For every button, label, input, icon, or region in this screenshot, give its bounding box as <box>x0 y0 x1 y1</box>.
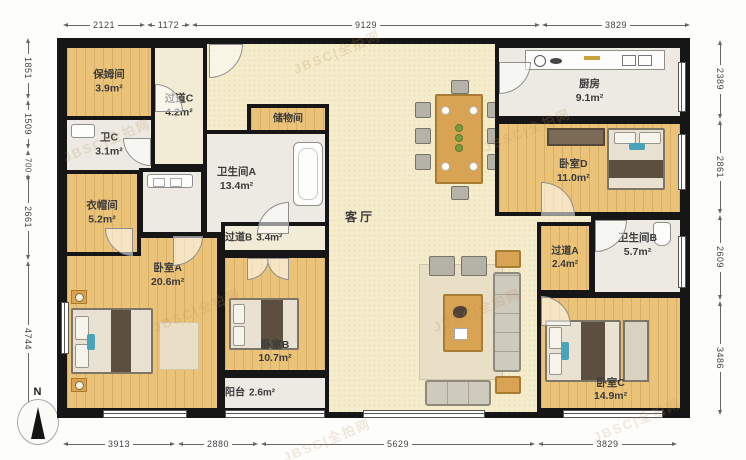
dining-chair <box>415 128 431 144</box>
coffee-table <box>443 294 483 352</box>
dim-bottom-1: 3913 <box>63 439 175 449</box>
room-balcony: 阳台2.6m² <box>221 374 329 412</box>
dining-chair <box>415 154 431 170</box>
window-bedroom-a-bottom <box>103 410 187 418</box>
window-bedroom-c-bottom <box>563 410 663 418</box>
dim-bottom-2: 2880 <box>178 439 258 449</box>
side-table <box>495 250 521 268</box>
compass: N <box>14 386 62 445</box>
compass-north-label: N <box>14 386 62 398</box>
sofa-l <box>493 272 521 372</box>
bathtub <box>293 142 323 206</box>
window-bedroom-a-left <box>61 302 69 354</box>
dim-right-3: 2609 <box>714 215 726 300</box>
bed-c <box>545 320 621 382</box>
dresser <box>547 128 605 146</box>
room-storage: 储物间 <box>247 104 329 134</box>
sink-counter <box>147 174 193 188</box>
wardrobe <box>623 320 649 382</box>
dining-table <box>435 94 483 184</box>
compass-needle-icon <box>31 407 45 439</box>
window-kitchen-right <box>678 62 686 112</box>
window-living-bottom <box>363 410 485 418</box>
dim-top-3: 9129 <box>192 20 540 30</box>
room-bath-a-corridor <box>139 168 205 236</box>
dim-right-4: 3486 <box>714 301 726 415</box>
room-living-label: 客厅 <box>345 210 375 226</box>
dim-left-4: 2661 <box>22 174 34 260</box>
room-bedroom-a: 卧室A20.6m² <box>63 234 221 412</box>
room-hall-a: 过道A2.4m² <box>537 222 593 294</box>
compass-dial <box>17 399 59 445</box>
dim-right-2: 2861 <box>714 120 726 214</box>
dining-chair <box>451 80 469 94</box>
room-name: 客厅 <box>345 210 375 226</box>
bed-a <box>71 308 153 374</box>
dim-top-4: 3829 <box>542 20 690 30</box>
dim-bottom-4: 3829 <box>538 439 677 449</box>
floor-plan-page: 2121 1172 9129 3829 3913 2880 5629 3829 … <box>0 0 746 460</box>
floor-plan: 客厅 保姆间3.9m² 过道C4.2m² 卫C3.1m² 储物间 卫生间A13.… <box>57 38 690 418</box>
dim-left-3: 700 <box>22 150 34 173</box>
window-bath-b-right <box>678 236 686 288</box>
dim-bottom-3: 5629 <box>261 439 535 449</box>
wall-left <box>57 38 63 418</box>
ottoman <box>461 256 487 276</box>
dining-chair <box>415 102 431 118</box>
room-bedroom-d: 卧室D11.0m² <box>495 120 684 216</box>
dim-top-1: 2121 <box>63 20 145 30</box>
nightstand <box>71 378 87 392</box>
sofa <box>425 380 491 406</box>
window-bedroom-d-right <box>678 134 686 190</box>
rug <box>159 322 199 370</box>
watermark: JBSC|全拍网 <box>280 413 374 460</box>
room-nanny: 保姆间3.9m² <box>63 44 155 120</box>
dim-top-2: 1172 <box>147 20 190 30</box>
dim-right-1: 2389 <box>714 40 726 119</box>
dim-left-1: 1851 <box>22 38 34 99</box>
ottoman <box>429 256 455 276</box>
side-table <box>495 376 521 394</box>
window-balcony <box>225 410 325 418</box>
nightstand <box>71 290 87 304</box>
bed-d <box>607 128 665 190</box>
wall-top <box>57 38 690 44</box>
door-entry <box>209 44 243 78</box>
kitchen-counter <box>525 50 665 70</box>
dim-left-2: 1509 <box>22 100 34 149</box>
dining-chair <box>451 186 469 200</box>
